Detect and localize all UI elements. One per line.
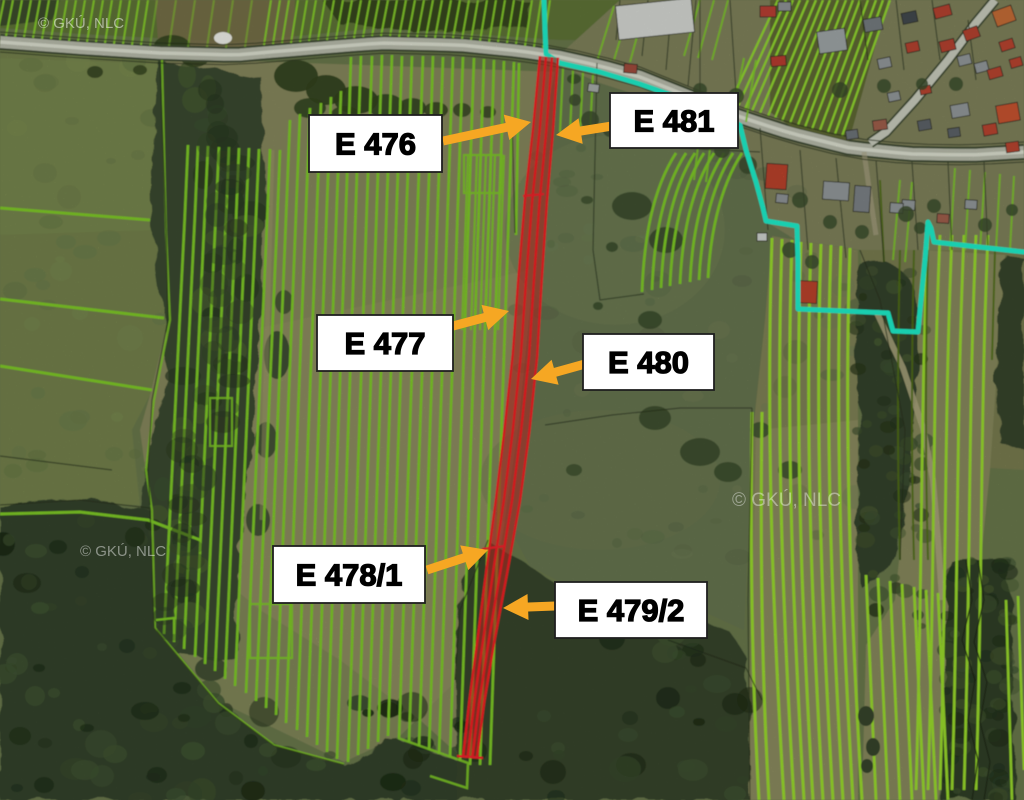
svg-text:E 478/1: E 478/1 [296, 558, 403, 593]
svg-text:© GKÚ, NLC: © GKÚ, NLC [80, 543, 166, 560]
svg-text:© GKÚ, NLC: © GKÚ, NLC [732, 489, 841, 511]
svg-text:E 476: E 476 [335, 127, 416, 162]
svg-text:E 477: E 477 [344, 326, 425, 361]
svg-text:E 481: E 481 [633, 104, 714, 139]
svg-text:E 479/2: E 479/2 [578, 593, 685, 628]
svg-text:© GKÚ, NLC: © GKÚ, NLC [38, 15, 124, 32]
svg-text:E 480: E 480 [608, 345, 689, 380]
